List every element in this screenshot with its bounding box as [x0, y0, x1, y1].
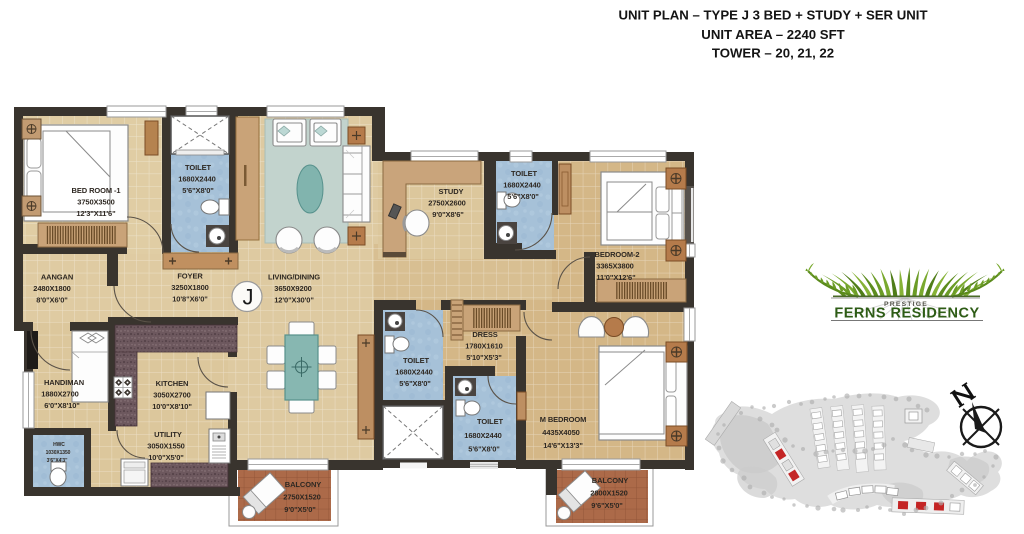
- svg-text:4435X4050: 4435X4050: [542, 428, 579, 437]
- svg-text:HWC: HWC: [53, 442, 65, 448]
- svg-text:5'6"X8'0": 5'6"X8'0": [468, 445, 500, 454]
- svg-text:3050X1550: 3050X1550: [147, 442, 184, 451]
- svg-text:10'0"X8'10": 10'0"X8'10": [152, 402, 192, 411]
- svg-text:5'6"X8'0": 5'6"X8'0": [182, 186, 214, 195]
- svg-text:2480X1800: 2480X1800: [33, 284, 70, 293]
- svg-text:BED ROOM -1: BED ROOM -1: [72, 186, 121, 195]
- svg-text:M BEDROOM: M BEDROOM: [540, 415, 587, 424]
- svg-text:FERNS RESIDENCY: FERNS RESIDENCY: [834, 306, 979, 322]
- svg-text:8'0"X6'0": 8'0"X6'0": [36, 296, 68, 305]
- svg-text:9'0"X5'0": 9'0"X5'0": [284, 505, 316, 514]
- svg-text:10'0"X5'0": 10'0"X5'0": [148, 453, 184, 462]
- svg-text:DRESS: DRESS: [472, 330, 497, 339]
- svg-text:BALCONY: BALCONY: [592, 476, 628, 485]
- svg-text:1680X2440: 1680X2440: [178, 175, 215, 184]
- svg-text:J: J: [243, 285, 254, 310]
- svg-text:BEDROOM-2: BEDROOM-2: [595, 250, 640, 259]
- svg-text:3'6"X4'3": 3'6"X4'3": [47, 458, 68, 464]
- svg-text:5'6"X8'0": 5'6"X8'0": [507, 192, 539, 201]
- svg-text:AANGAN: AANGAN: [41, 273, 73, 282]
- svg-text:1880X2700: 1880X2700: [41, 390, 78, 399]
- svg-text:5'10"X5'3": 5'10"X5'3": [466, 353, 502, 362]
- svg-text:10'8"X6'0": 10'8"X6'0": [172, 295, 208, 304]
- svg-text:12'3"X11'6": 12'3"X11'6": [76, 209, 116, 218]
- svg-text:FOYER: FOYER: [177, 272, 203, 281]
- svg-text:1680X2440: 1680X2440: [503, 181, 540, 190]
- svg-text:BALCONY: BALCONY: [285, 480, 321, 489]
- svg-text:UTILITY: UTILITY: [154, 430, 182, 439]
- svg-text:1680X2440: 1680X2440: [395, 368, 432, 377]
- svg-text:UNIT PLAN – TYPE J 3 BED + STU: UNIT PLAN – TYPE J 3 BED + STUDY + SER U…: [619, 8, 928, 23]
- svg-text:14'6"X13'3": 14'6"X13'3": [543, 441, 583, 450]
- svg-text:2750X1520: 2750X1520: [283, 493, 320, 502]
- svg-text:LIVING/DINING: LIVING/DINING: [268, 273, 320, 282]
- svg-text:1680X2440: 1680X2440: [464, 431, 501, 440]
- svg-text:UNIT AREA – 2240 SFT: UNIT AREA – 2240 SFT: [701, 27, 844, 42]
- svg-text:TOILET: TOILET: [511, 169, 537, 178]
- svg-text:3250X1800: 3250X1800: [171, 283, 208, 292]
- svg-text:11'0"X12'6": 11'0"X12'6": [596, 273, 636, 282]
- svg-text:3050X2700: 3050X2700: [153, 391, 190, 400]
- svg-text:9'6"X5'0": 9'6"X5'0": [591, 501, 623, 510]
- svg-text:5'6"X8'0": 5'6"X8'0": [399, 379, 431, 388]
- svg-text:HANDIMAN: HANDIMAN: [44, 378, 84, 387]
- svg-text:1030X1350: 1030X1350: [46, 450, 71, 456]
- svg-text:TOILET: TOILET: [185, 163, 211, 172]
- svg-text:2800X1520: 2800X1520: [590, 489, 627, 498]
- svg-text:3650X9200: 3650X9200: [274, 284, 311, 293]
- svg-text:TOWER – 20, 21, 22: TOWER – 20, 21, 22: [712, 46, 834, 61]
- svg-text:KITCHEN: KITCHEN: [156, 379, 189, 388]
- svg-text:9'0"X8'6": 9'0"X8'6": [432, 210, 464, 219]
- svg-text:12'0"X30'0": 12'0"X30'0": [274, 296, 314, 305]
- svg-text:6'0"X8'10": 6'0"X8'10": [44, 401, 80, 410]
- svg-text:3365X3800: 3365X3800: [596, 262, 633, 271]
- svg-text:TOILET: TOILET: [477, 417, 503, 426]
- svg-text:3750X3500: 3750X3500: [77, 198, 114, 207]
- svg-text:TOILET: TOILET: [403, 356, 429, 365]
- svg-text:1780X1610: 1780X1610: [465, 342, 502, 351]
- svg-text:STUDY: STUDY: [439, 187, 464, 196]
- svg-text:2750X2600: 2750X2600: [428, 199, 465, 208]
